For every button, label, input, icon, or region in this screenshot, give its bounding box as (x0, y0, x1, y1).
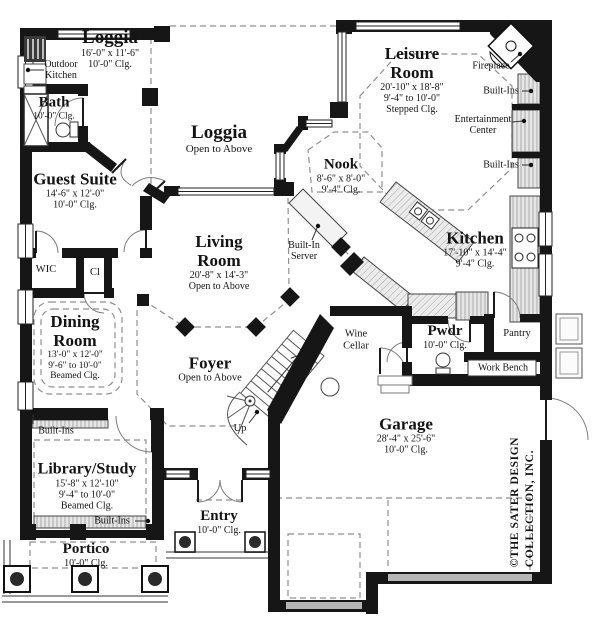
room-label-kitchen: Kitchen 17'-10" x 14'-4" 9'-4" Clg. (443, 228, 506, 269)
room-label-garage: Garage 28'-4" x 25'-6" 10'-0" Clg. (377, 414, 435, 455)
kitchen-peninsula (408, 294, 458, 318)
garage-entry-steps (378, 376, 412, 393)
kitchen-cabinet (456, 292, 488, 320)
room-label-wine-cellar: Wine Cellar (334, 328, 378, 352)
label-built-ins-right-lower: Built-Ins (483, 159, 519, 170)
equipment-pads (556, 314, 582, 378)
room-label-bath: Bath 10'-0" Clg. (33, 94, 74, 121)
floor-plan: Loggia 16'-0" x 11'-6" 10'-0" Clg. Outdo… (0, 0, 600, 622)
copyright-text: ©THE SATER DESIGN COLLECTION, INC. (508, 437, 538, 567)
room-label-foyer: Foyer Open to Above (178, 354, 242, 385)
entertainment-center-cabinet (512, 110, 540, 152)
room-label-living-room: Living Room 20'-8" x 14'-3" Open to Abov… (187, 232, 251, 292)
room-label-library-study: Library/Study 15'-8" x 12'-10" 9'-4" to … (38, 460, 137, 511)
room-label-pantry: Pantry (503, 328, 530, 340)
room-label-loggia-center: Loggia Open to Above (186, 122, 253, 156)
label-built-ins-library-bottom: Built-Ins (94, 515, 130, 526)
label-entertainment-center: Entertainment Center (455, 114, 512, 136)
built-in-server-counter (289, 189, 347, 247)
label-fireplace: Fireplace (472, 60, 509, 71)
portico-columns (4, 566, 168, 592)
label-built-ins-library-top: Built-Ins (38, 425, 74, 436)
garage-door-single (286, 602, 362, 609)
room-label-entry: Entry 10'-0" Clg. (197, 508, 241, 536)
room-label-loggia-top: Loggia 16'-0" x 11'-6" 10'-0" Clg. (81, 27, 139, 71)
built-in-lower (518, 158, 540, 188)
bath-toilet (56, 122, 78, 137)
room-label-leisure-room: Leisure Room 20'-10" x 18'-8" 9'-4" to 1… (376, 44, 448, 116)
hall-column (321, 378, 339, 396)
label-work-bench: Work Bench (478, 362, 528, 373)
room-label-pwdr: Pwdr 10'-0" Clg. (423, 323, 467, 351)
label-outdoor-kitchen: Outdoor Kitchen (44, 59, 77, 81)
label-built-in-server: Built-In Server (288, 240, 320, 262)
label-built-ins-right-upper: Built-Ins (483, 85, 519, 96)
room-label-cl: Cl (90, 267, 100, 279)
room-label-wic: WIC (36, 264, 56, 276)
room-label-nook: Nook 8'-6" x 8'-0" 9'-4" Clg. (317, 156, 365, 195)
room-label-guest-suite: Guest Suite 14'-6" x 12'-0" 10'-0" Clg. (33, 169, 117, 210)
room-label-portico: Portico 10'-0" Clg. (63, 541, 110, 569)
kitchen-peninsula-diagonal (352, 257, 414, 311)
room-label-dining-room: Dining Room 13'-0" x 12'-0" 9'-6" to 10'… (44, 312, 106, 382)
label-up: Up (234, 423, 247, 435)
steps-and-stoops (2, 540, 278, 602)
cooktop (512, 228, 538, 268)
garage-door-wide (388, 574, 532, 581)
pwdr-toilet (436, 353, 450, 374)
